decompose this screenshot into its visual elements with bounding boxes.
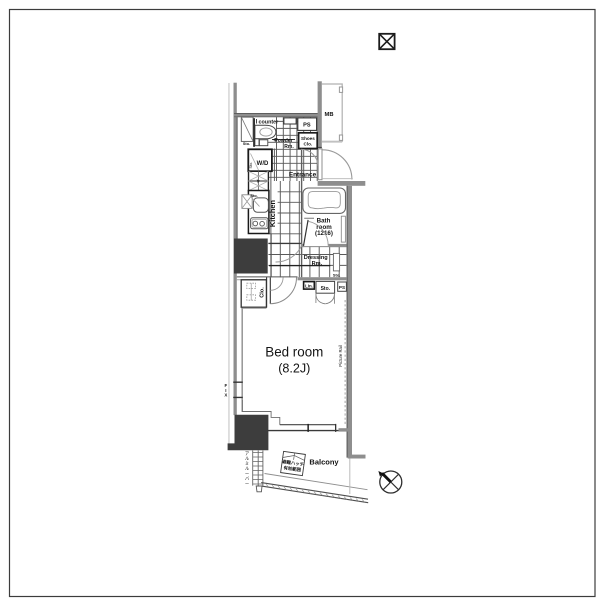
svg-text:ー: ー bbox=[245, 481, 249, 486]
svg-text:Rm.: Rm. bbox=[284, 144, 294, 150]
svg-text:Sto.: Sto. bbox=[333, 272, 341, 277]
svg-text:Picture Rail: Picture Rail bbox=[338, 345, 343, 366]
svg-text:Sto.: Sto. bbox=[249, 162, 253, 169]
svg-text:PS: PS bbox=[339, 285, 345, 290]
svg-text:Lin.: Lin. bbox=[305, 284, 313, 289]
svg-text:counter: counter bbox=[259, 119, 280, 125]
svg-text:MB: MB bbox=[324, 112, 333, 118]
svg-text:Kitchen: Kitchen bbox=[268, 199, 277, 227]
svg-text:Dressing: Dressing bbox=[304, 255, 329, 261]
svg-text:Entrance: Entrance bbox=[289, 171, 317, 178]
svg-text:Bed room: Bed room bbox=[265, 345, 323, 360]
svg-text:Clo.: Clo. bbox=[259, 287, 265, 298]
svg-text:(1216): (1216) bbox=[315, 230, 333, 237]
svg-text:Clo.: Clo. bbox=[304, 142, 313, 147]
svg-text:(8.2J): (8.2J) bbox=[278, 361, 310, 375]
svg-text:Sto.: Sto. bbox=[243, 142, 250, 146]
svg-text:Sto.: Sto. bbox=[321, 286, 331, 292]
svg-text:W/D: W/D bbox=[257, 161, 269, 167]
svg-text:Balcony: Balcony bbox=[309, 457, 339, 466]
svg-text:X: X bbox=[224, 393, 227, 398]
svg-text:PS: PS bbox=[303, 123, 311, 129]
svg-text:Shoes: Shoes bbox=[301, 136, 315, 141]
